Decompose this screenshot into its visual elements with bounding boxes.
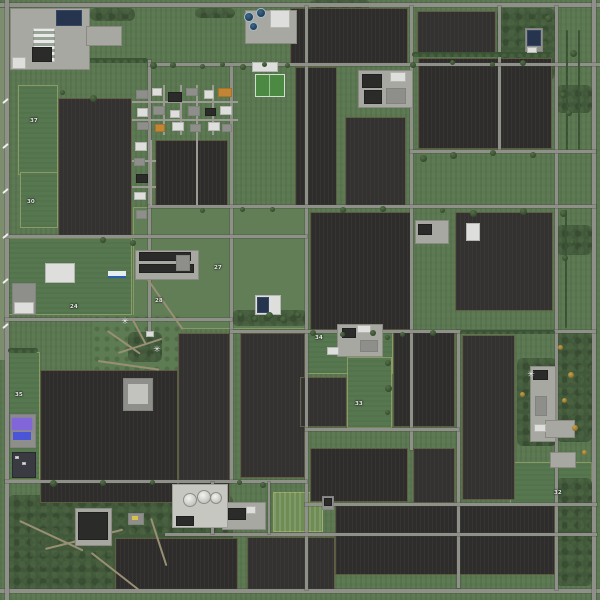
building [15,456,19,459]
autumn-tree [562,398,567,403]
building [357,325,371,333]
tree [200,208,205,213]
tree [100,237,106,243]
tree [295,312,301,318]
tree [470,210,477,217]
building [12,418,32,430]
hedge-row [566,30,568,150]
farmyard-paved-area [550,452,576,468]
wind-turbine-icon: ✳ [526,371,536,381]
plowed-dark-field [115,538,238,590]
tree [285,63,290,68]
water-tank [244,12,254,22]
building [386,88,406,104]
storage-silo-tank [197,490,211,504]
building [14,302,34,314]
building [132,516,138,520]
autumn-tree [572,425,578,431]
autumn-tree [520,392,525,397]
tree [220,62,225,67]
road [498,6,501,152]
building [146,331,154,337]
building [186,88,198,96]
field-number-label: 37 [30,118,38,124]
plowed-dark-field [58,98,132,238]
field-number-label: 30 [27,199,35,205]
village-street [132,101,238,103]
plowed-dark-field [155,140,228,206]
field-number-label: 33 [355,401,363,407]
hedge-row [578,30,580,150]
road [5,0,9,600]
tree [440,208,445,213]
building [32,47,52,62]
sports-field [255,74,285,97]
building [204,90,214,99]
autumn-tree [568,372,574,378]
building [466,223,480,241]
tree [150,480,155,485]
building [390,72,406,82]
tree [560,92,566,98]
building [364,90,382,104]
building [135,142,147,151]
building [168,92,182,102]
tree [410,62,416,68]
tree [560,210,567,217]
tree [270,207,275,212]
tree [340,207,346,213]
tree [385,335,390,340]
plowed-dark-field [418,58,552,149]
tree [238,312,244,318]
building [190,124,201,132]
plowed-dark-field [417,11,496,53]
tree [260,482,266,488]
building [12,57,26,69]
building [327,347,339,355]
road [148,63,600,66]
plowed-dark-field [310,212,412,330]
tree [562,255,568,261]
building [176,255,190,271]
tree [530,152,536,158]
building [136,210,147,219]
tree [570,50,577,57]
green-field [18,85,58,175]
plowed-dark-field [413,448,455,503]
building [534,424,546,432]
road [5,235,307,238]
building [155,124,165,132]
forest-patch [90,8,135,21]
building [176,516,194,526]
tree [100,480,106,486]
tree [240,64,246,70]
building [152,88,162,96]
building [136,174,148,183]
field-number-label: 27 [214,265,222,271]
tree [252,316,258,322]
plowed-dark-field [335,505,555,575]
building [153,106,165,115]
tree [170,62,176,68]
building [172,122,184,131]
field-number-label: 34 [315,335,323,341]
tree [90,95,97,102]
plowed-dark-field [295,67,337,206]
road [410,150,596,153]
field-number-label: 32 [554,490,562,496]
plowed-dark-field [240,333,305,478]
forest-patch [556,85,592,113]
building [137,108,148,117]
road [0,3,600,7]
road [165,533,597,536]
tree [262,62,267,67]
autumn-tree [582,450,587,455]
building [137,122,149,130]
building [222,124,232,132]
building [360,340,378,352]
wind-turbine-icon: ✳ [120,318,130,328]
building [78,512,108,540]
building [205,108,216,116]
tree [520,208,527,215]
farm-map-aerial-overview: ✳✳✳373027282434333532 [0,0,600,600]
plowed-dark-field [393,332,455,427]
tree [130,240,136,246]
autumn-tree [558,345,563,350]
plowed-dark-field [40,370,178,503]
tree [490,62,495,67]
storage-silo-tank [183,493,197,507]
wind-turbine-icon: ✳ [152,346,162,356]
building [170,110,180,118]
hedge-row [8,348,38,353]
building [134,192,146,200]
tree [430,330,436,336]
tree [385,385,392,392]
building [218,88,232,97]
road [305,503,597,506]
plowed-dark-field [462,335,515,500]
storage-silo-tank [210,492,222,504]
field-number-label: 35 [15,392,23,398]
tree [490,150,496,156]
tree [545,15,552,22]
farmyard-paved-area [86,26,122,46]
tree [570,240,575,245]
road [0,589,600,593]
tree [340,332,345,337]
building [56,10,82,26]
village-street [196,85,198,205]
road [148,205,596,208]
road [5,318,232,321]
building [418,224,432,235]
tree [240,207,245,212]
building [136,90,148,99]
building [527,47,537,53]
building [246,506,256,514]
plowed-dark-field [247,537,335,590]
building [324,498,332,506]
village-street [132,119,238,121]
building [535,396,547,416]
plowed-dark-field [178,333,230,503]
road [305,428,459,431]
tree [60,90,65,95]
tree [200,64,205,69]
tree [370,330,376,336]
building [257,297,269,313]
building [134,158,145,166]
building [13,432,31,440]
field-number-label: 28 [155,298,163,304]
tree [450,152,457,159]
green-field [20,172,58,228]
tree [266,312,273,319]
tree [150,62,157,69]
hedge-row [565,210,567,328]
building [128,384,148,404]
tree [520,60,526,66]
forest-patch [195,8,235,18]
tree [420,155,427,162]
tree [385,410,390,415]
building [45,263,75,283]
village-street [150,140,152,206]
green-field [347,357,392,428]
plowed-dark-field [310,448,408,502]
tree [385,360,391,366]
farmyard-paved-area [545,420,575,438]
water-tank [256,8,266,18]
tree [450,60,455,65]
building [270,10,290,28]
tree [50,480,57,487]
plowed-dark-field [345,117,406,206]
water-tank [249,22,258,31]
building [527,30,541,46]
building [108,271,126,278]
building [188,106,200,116]
building [208,122,220,131]
building [228,508,246,520]
building [362,74,382,88]
village-street [132,186,156,188]
road [457,330,460,588]
road [592,0,596,600]
building [220,106,232,115]
tree [237,480,242,485]
tree [566,110,572,116]
tree [380,206,386,212]
tree [280,316,287,323]
tree [400,332,405,337]
hedge-row [460,330,555,334]
building [22,462,26,465]
road [268,482,270,534]
field-number-label: 24 [70,304,78,310]
